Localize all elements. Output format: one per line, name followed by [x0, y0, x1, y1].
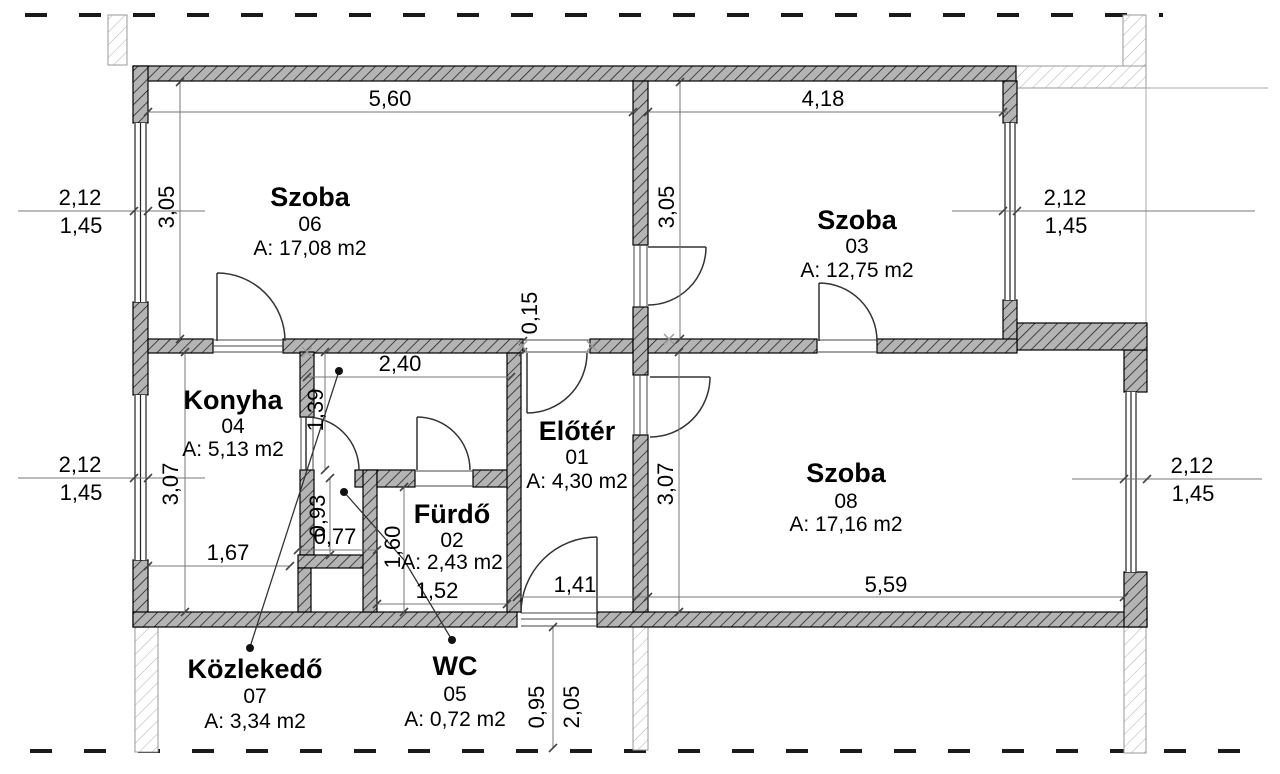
- room-number-szoba08: 08: [834, 490, 857, 513]
- room-name-wc: WC: [433, 651, 478, 681]
- room-name-kozlekedo: Közlekedő: [187, 654, 322, 684]
- wall-mid-seg5: [877, 339, 1017, 353]
- leader-dot: [335, 367, 343, 375]
- room-number-eloter: 01: [565, 446, 588, 469]
- dim-window-se-width: 2,12: [1171, 453, 1214, 478]
- room-name-szoba03: Szoba: [817, 205, 897, 235]
- wall-center-seg1: [633, 81, 648, 245]
- room-number-szoba03: 03: [845, 235, 868, 258]
- room-area-konyha: A: 5,13 m2: [182, 438, 284, 461]
- wall-under-balcony: [1017, 323, 1147, 350]
- dim-szoba03-width: 4,18: [802, 86, 845, 111]
- room-name-szoba06: Szoba: [270, 182, 350, 212]
- dim-wall-thickness: 0,15: [517, 292, 542, 335]
- dim-window-ne-width: 2,12: [1044, 185, 1087, 210]
- room-number-wc: 05: [443, 683, 466, 706]
- room-number-szoba06: 06: [298, 213, 321, 236]
- wall-furdo-top-seg1: [377, 470, 415, 487]
- neighbor-wall-top-right: [1123, 15, 1146, 66]
- dim-konyha-depth: 3,07: [158, 463, 183, 506]
- room-number-furdo: 02: [440, 529, 463, 552]
- dim-entrance-width: 1,41: [554, 572, 597, 597]
- window-szoba06: [134, 123, 147, 302]
- leader-dot: [246, 644, 254, 652]
- room-area-furdo: A: 2,43 m2: [401, 551, 503, 574]
- room-number-konyha: 04: [221, 415, 245, 438]
- dim-furdo-depth: 1,60: [380, 526, 405, 569]
- dim-window-ne-parapet: 1,45: [1045, 213, 1088, 238]
- leader-dot: [340, 488, 348, 496]
- dim-szoba03-depth: 3,05: [654, 186, 679, 229]
- dim-window-sw-parapet: 1,45: [60, 480, 103, 505]
- dim-window-se-parapet: 1,45: [1172, 481, 1215, 506]
- room-name-eloter: Előtér: [539, 416, 616, 446]
- neighbor-wall-bottom-middle: [633, 627, 648, 750]
- dim-szoba06-width: 5,60: [369, 86, 412, 111]
- wall-bottom-right: [597, 612, 1147, 627]
- room-area-szoba08: A: 17,16 m2: [789, 513, 902, 536]
- neighbor-wall-bottom-right: [1124, 627, 1146, 753]
- room-area-eloter: A: 4,30 m2: [526, 470, 628, 493]
- dim-window-sw-width: 2,12: [59, 452, 102, 477]
- dim-kozlekedo-width: 2,40: [379, 351, 422, 376]
- room-area-szoba03: A: 12,75 m2: [800, 259, 913, 282]
- room-area-szoba06: A: 17,08 m2: [253, 237, 366, 260]
- neighbor-wall-band-top-right: [1016, 66, 1146, 88]
- neighbor-wall-top-left: [108, 15, 127, 65]
- room-name-szoba08: Szoba: [806, 458, 886, 488]
- leader-dot: [448, 636, 456, 644]
- wall-right-seg1: [1124, 350, 1147, 392]
- wall-bottom-left: [133, 612, 517, 627]
- dim-szoba08-width: 5,59: [865, 572, 908, 597]
- wall-center-seg2: [633, 307, 648, 375]
- dim-konyha-width: 1,67: [207, 540, 250, 565]
- neighbor-wall-bottom-left: [135, 627, 158, 752]
- dim-kozlekedo-depth: 1,39: [303, 389, 328, 432]
- dim-entrance-b: 2,05: [559, 686, 584, 729]
- room-number-kozlekedo: 07: [243, 685, 266, 708]
- window-szoba08: [1125, 392, 1137, 572]
- dim-szoba08-depth: 3,07: [653, 463, 678, 506]
- dim-entrance-a: 0,95: [524, 686, 549, 729]
- wall-right-seg2: [1124, 572, 1147, 627]
- wall-left-seg2: [133, 302, 148, 395]
- wall-center-seg3: [633, 435, 648, 612]
- wall-mid-seg1: [148, 339, 213, 353]
- floor-plan: Szoba 06 A: 17,08 m2 Szoba 03 A: 12,75 m…: [0, 0, 1280, 774]
- room-area-wc: A: 0,72 m2: [404, 708, 506, 731]
- wall-szoba03-window-top: [1003, 81, 1017, 123]
- dim-wc-depth: 0,93: [305, 495, 330, 538]
- room-name-konyha: Konyha: [183, 385, 283, 415]
- dim-furdo-width: 1,52: [416, 578, 459, 603]
- wall-furdo-left: [363, 470, 377, 612]
- dim-window-nw-width: 2,12: [59, 185, 102, 210]
- wall-mid-seg4: [648, 339, 817, 353]
- floor-plan-drawing: Szoba 06 A: 17,08 m2 Szoba 03 A: 12,75 m…: [0, 0, 1280, 774]
- wall-szoba03-window-bottom: [1003, 300, 1017, 343]
- wall-shaft-left: [298, 568, 311, 612]
- room-name-furdo: Fürdő: [414, 499, 490, 529]
- wall-eloter-left: [507, 353, 521, 612]
- wall-top: [133, 66, 1016, 81]
- dim-window-nw-parapet: 1,45: [60, 213, 103, 238]
- room-area-kozlekedo: A: 3,34 m2: [204, 710, 306, 733]
- dim-szoba06-depth: 3,05: [154, 186, 179, 229]
